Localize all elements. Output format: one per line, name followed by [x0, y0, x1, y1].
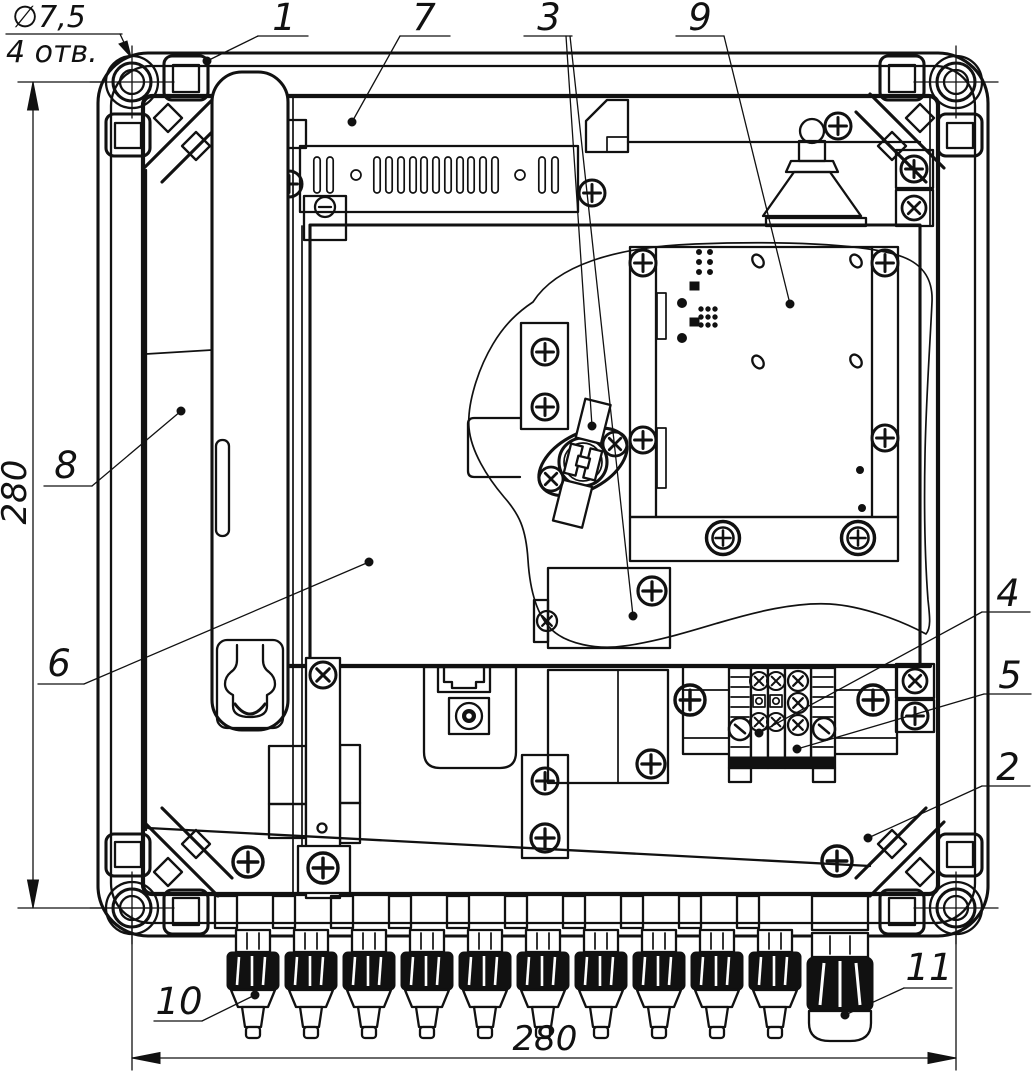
callout-label-3: 3: [537, 0, 561, 39]
callout-label-9: 9: [688, 0, 712, 39]
pcb-solder-pads: [678, 250, 866, 512]
rj45-jack-icon: [444, 667, 484, 688]
callout-label-8: 8: [54, 444, 78, 487]
drawing-page: 280 280 ∅7,5 4 отв.: [0, 0, 1033, 1080]
dim-width-label: 280: [513, 1019, 578, 1059]
callout-label-7: 7: [412, 0, 436, 39]
center-bracket: [468, 323, 568, 477]
terminal-blocks: [675, 664, 934, 782]
callout-label-4: 4: [996, 572, 1020, 615]
hole-note: ∅7,5 4 отв.: [6, 0, 131, 70]
partial-view-break-line: [469, 243, 932, 647]
callout-leaders: [38, 36, 1031, 1021]
hole-note-count: 4 отв.: [6, 35, 98, 70]
callout-label-10: 10: [155, 980, 202, 1023]
dimension-height: 280: [0, 82, 150, 908]
antenna-holder-bar: [212, 72, 288, 730]
hole-note-diameter: ∅7,5: [12, 0, 86, 35]
bottom-edge-tabs: [215, 896, 868, 930]
callout-label-6: 6: [47, 642, 71, 685]
bottom-rail: [148, 828, 870, 877]
lower-module: [522, 670, 668, 858]
callout-label-1: 1: [272, 0, 296, 39]
technical-drawing: 280 280 ∅7,5 4 отв.: [0, 0, 1033, 1080]
relay-block: [534, 568, 670, 648]
callout-label-2: 2: [996, 746, 1020, 789]
dim-height-label: 280: [0, 460, 35, 525]
cable-gland-large: [807, 933, 873, 1041]
callout-label-5: 5: [998, 654, 1022, 697]
connector-plate: [424, 667, 516, 768]
callout-label-11: 11: [905, 946, 952, 989]
pcb-board: [630, 247, 898, 561]
main-mounting-plate: [283, 225, 930, 666]
